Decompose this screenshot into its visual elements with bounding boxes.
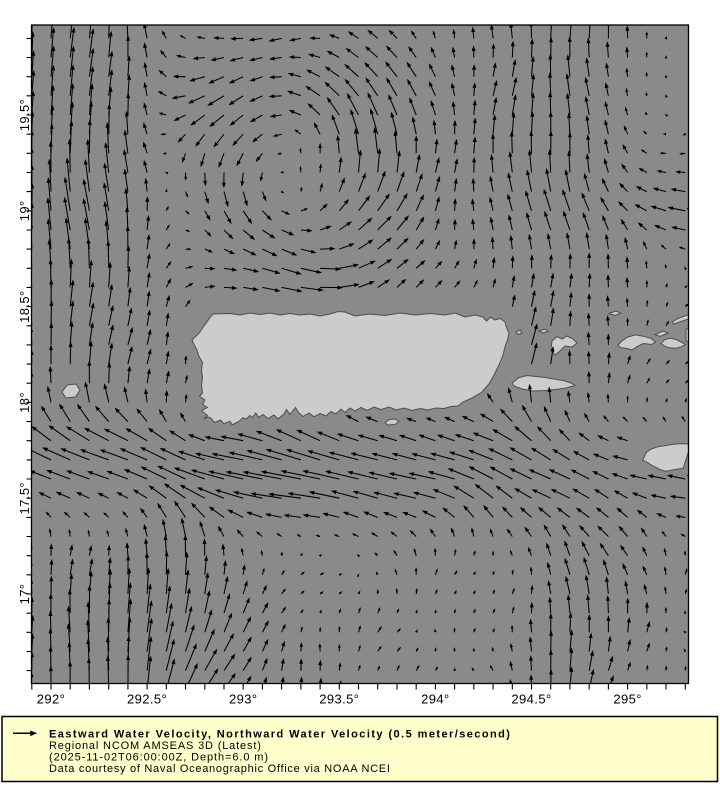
- svg-text:(2025-11-02T06:00:00Z, Depth=6: (2025-11-02T06:00:00Z, Depth=6.0 m): [49, 751, 269, 763]
- svg-text:294.5°: 294.5°: [511, 692, 551, 707]
- svg-text:19°: 19°: [17, 200, 32, 221]
- svg-text:294°: 294°: [421, 692, 450, 707]
- svg-text:292.5°: 292.5°: [127, 692, 167, 707]
- svg-text:18.5°: 18.5°: [17, 290, 32, 323]
- svg-text:295°: 295°: [613, 692, 642, 707]
- svg-text:Data courtesy of Naval Oceanog: Data courtesy of Naval Oceanographic Off…: [49, 763, 391, 775]
- svg-text:Regional NCOM AMSEAS 3D (Lates: Regional NCOM AMSEAS 3D (Latest): [49, 740, 262, 752]
- svg-text:293°: 293°: [229, 692, 258, 707]
- svg-text:293.5°: 293.5°: [319, 692, 359, 707]
- svg-text:17.5°: 17.5°: [17, 482, 32, 515]
- svg-text:Eastward Water Velocity, North: Eastward Water Velocity, Northward Water…: [49, 729, 511, 741]
- svg-text:19.5°: 19.5°: [17, 99, 32, 132]
- svg-text:17°: 17°: [17, 584, 32, 605]
- svg-text:18°: 18°: [17, 392, 32, 413]
- svg-text:292°: 292°: [37, 692, 66, 707]
